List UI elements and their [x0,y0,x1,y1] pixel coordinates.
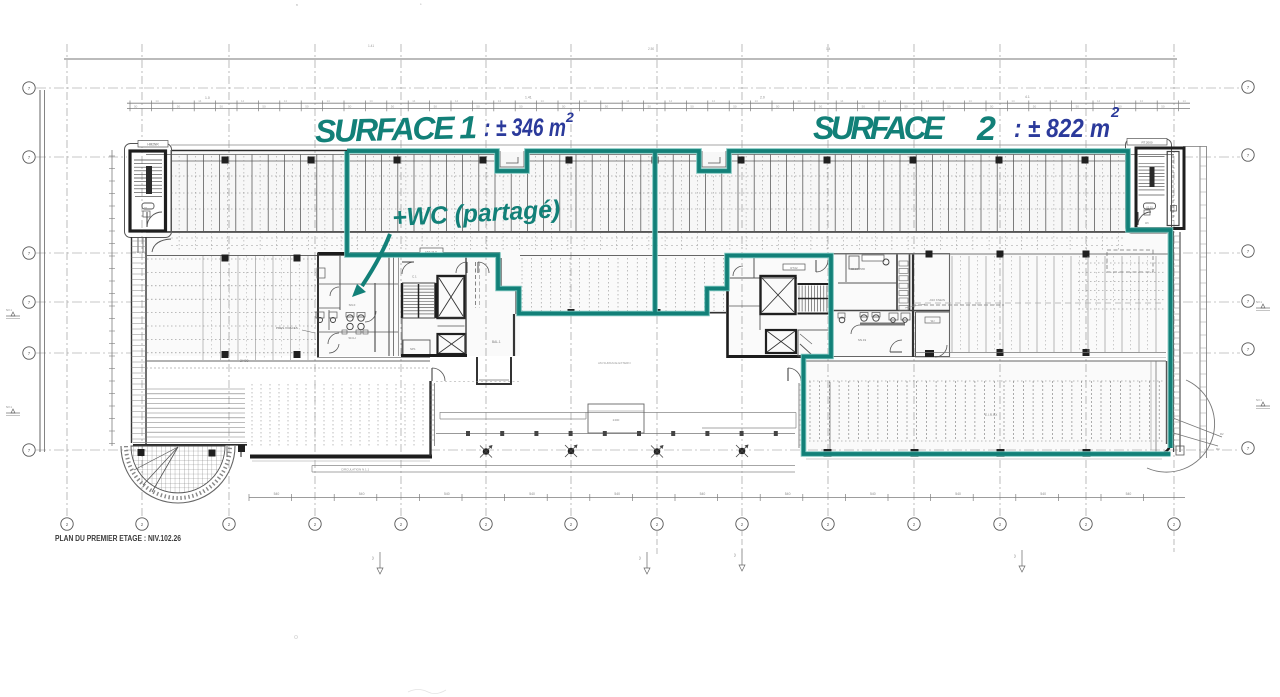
svg-text:WC: WC [1145,222,1149,225]
svg-text:50: 50 [177,104,181,108]
svg-text:PLAN DU PREMIER ETAGE : NIV.10: PLAN DU PREMIER ETAGE : NIV.102.26 [55,534,182,543]
svg-text:RT.02: RT.02 [790,266,798,270]
svg-text:14: 14 [797,99,801,103]
svg-text:SURFACE: SURFACE [813,110,946,146]
svg-text:R4: R4 [1216,447,1220,451]
svg-text:2: 2 [565,109,574,125]
svg-text:1.4: 1.4 [826,47,831,51]
svg-text:540: 540 [529,492,535,496]
svg-text:14: 14 [1097,99,1101,103]
svg-text:HM2NR: HM2NR [147,143,159,147]
svg-text:14: 14 [541,99,545,103]
svg-text:50: 50 [434,104,438,108]
svg-text:540: 540 [614,492,620,496]
svg-text:SP1: SP1 [410,347,416,351]
svg-text:2.50: 2.50 [648,47,654,51]
svg-text:50: 50 [904,104,908,108]
svg-text:NV.1: NV.1 [1256,300,1262,304]
svg-text:SN.F: SN.F [349,303,356,307]
svg-text:NV.1: NV.1 [6,405,12,409]
svg-text:RT.2000: RT.2000 [1141,140,1152,144]
svg-text:540: 540 [444,492,450,496]
svg-text:50: 50 [605,104,609,108]
svg-text:50: 50 [690,104,694,108]
svg-text:SN.19: SN.19 [858,338,867,342]
svg-text:1.0: 1.0 [205,96,210,100]
svg-text:50: 50 [305,104,309,108]
svg-text:50: 50 [947,104,951,108]
svg-text:SURFACE 1: SURFACE 1 [315,109,480,149]
svg-text:R2: R2 [1220,432,1224,436]
svg-text:50: 50 [862,104,866,108]
svg-text:50: 50 [990,104,994,108]
svg-text:14: 14 [926,99,930,103]
svg-text:14: 14 [755,99,759,103]
svg-text:50: 50 [1033,104,1037,108]
svg-text:NV: NV [638,556,642,560]
svg-text:50: 50 [562,104,566,108]
svg-text:50: 50 [776,104,780,108]
svg-text:14: 14 [883,99,887,103]
svg-text:: ± 346 m: : ± 346 m [484,114,566,142]
svg-text:BAL.1: BAL.1 [492,340,501,344]
svg-text:NV.1: NV.1 [6,308,12,312]
svg-text:50: 50 [819,104,823,108]
svg-text:14: 14 [1183,99,1187,103]
svg-text:C.1: C.1 [412,275,417,279]
svg-text:E.I.R.RX: E.I.R.RX [985,413,998,417]
svg-text:14: 14 [455,99,459,103]
svg-text:540: 540 [870,492,876,496]
svg-text:14: 14 [284,99,288,103]
svg-text:50: 50 [348,104,352,108]
svg-text:NV.1: NV.1 [1256,398,1262,402]
svg-text:50: 50 [733,104,737,108]
svg-text:SN.H: SN.H [348,336,355,340]
svg-text:14: 14 [155,99,159,103]
svg-text:14: 14 [669,99,673,103]
svg-text:NV: NV [371,556,375,560]
svg-text:n: n [296,3,298,7]
svg-text:50: 50 [391,104,395,108]
svg-text:CIRCULATION N.1.1: CIRCULATION N.1.1 [341,468,369,472]
svg-text:14: 14 [712,99,716,103]
svg-text:540: 540 [785,492,791,496]
svg-text:02.19 PMR: 02.19 PMR [851,267,865,271]
svg-text:2/400: 2/400 [240,359,249,363]
svg-text:14: 14 [241,99,245,103]
svg-text:2: 2 [1110,104,1120,121]
svg-text:2400: 2400 [613,418,620,422]
svg-text:: ± 822 m: : ± 822 m [1014,113,1110,143]
svg-text:14: 14 [369,99,373,103]
svg-text:14: 14 [412,99,416,103]
svg-text:AM.SURFACE.EXTERN: AM.SURFACE.EXTERN [598,361,631,365]
svg-text:14: 14 [840,99,844,103]
svg-text:14: 14 [198,99,202,103]
svg-text:NV: NV [733,553,737,557]
svg-text:540: 540 [274,492,280,496]
svg-text:NV: NV [1013,554,1017,558]
svg-text:14: 14 [969,99,973,103]
svg-text:-910 KNEIN: -910 KNEIN [929,298,945,302]
svg-text:50: 50 [220,104,224,108]
svg-text:50: 50 [1076,104,1080,108]
svg-text:14: 14 [583,99,587,103]
svg-text:4.1: 4.1 [1025,95,1030,99]
svg-text:2: 2 [976,110,996,148]
svg-text:2.0: 2.0 [760,96,765,100]
svg-text:540: 540 [1126,492,1132,496]
svg-text:14: 14 [1054,99,1058,103]
svg-text:14: 14 [1011,99,1015,103]
svg-text:50: 50 [134,104,138,108]
svg-text:50: 50 [476,104,480,108]
svg-text:1.41: 1.41 [368,44,374,48]
svg-text:1.41: 1.41 [525,96,532,100]
svg-text:14: 14 [327,99,331,103]
svg-text:02.03: 02.03 [1146,206,1153,209]
svg-text:540: 540 [955,492,961,496]
svg-text:PRES.VIVACES: PRES.VIVACES [276,326,298,330]
svg-text:50: 50 [648,104,652,108]
svg-text:540: 540 [700,492,706,496]
svg-text:14: 14 [626,99,630,103]
svg-text:50: 50 [262,104,266,108]
svg-text:50: 50 [519,104,523,108]
svg-text:540: 540 [1040,492,1046,496]
svg-text:50: 50 [1161,104,1165,108]
svg-text:14: 14 [1140,99,1144,103]
svg-text:540: 540 [359,492,365,496]
svg-text:14: 14 [498,99,502,103]
